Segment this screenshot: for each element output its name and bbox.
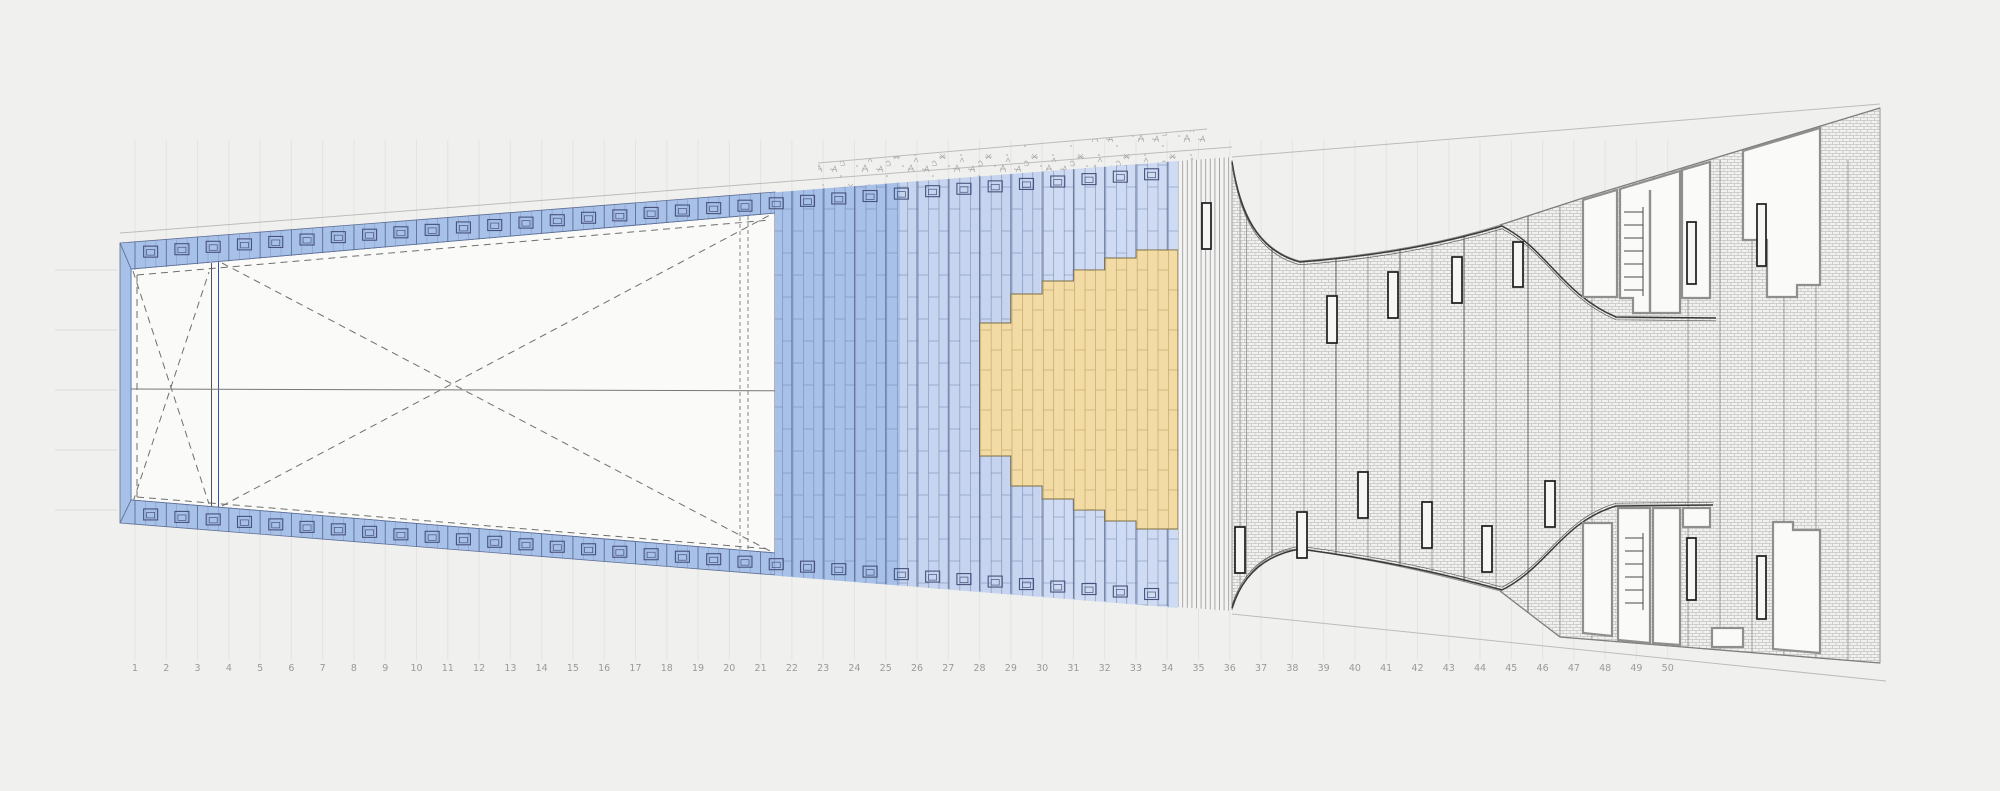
grid-number: 5 (257, 663, 263, 674)
grid-number: 35 (1192, 663, 1204, 674)
grid-number: 9 (382, 663, 388, 674)
grid-number: 12 (473, 663, 485, 674)
grid-number: 22 (786, 663, 798, 674)
grid-number: 3 (195, 663, 201, 674)
grid-number: 27 (942, 663, 954, 674)
rooflight (1452, 257, 1462, 303)
grid-number: 50 (1662, 663, 1674, 674)
grid-number: 8 (351, 663, 357, 674)
site-plan-page: 1234567891011121314151617181920212223242… (0, 0, 2000, 791)
grid-number: 13 (504, 663, 516, 674)
rooflight (1358, 472, 1368, 518)
grid-number: 33 (1130, 663, 1142, 674)
grid-number: 45 (1505, 663, 1517, 674)
grid-number: 10 (410, 663, 422, 674)
grid-number: 39 (1318, 663, 1330, 674)
grid-number: 6 (288, 663, 294, 674)
grid-number: 49 (1630, 663, 1642, 674)
landing-bottom (1683, 508, 1710, 527)
rooflight (1757, 204, 1766, 266)
grid-number: 41 (1380, 663, 1392, 674)
room-bottom-left (1583, 523, 1612, 636)
grid-number: 14 (536, 663, 548, 674)
grid-number: 30 (1036, 663, 1048, 674)
grid-number: 43 (1443, 663, 1455, 674)
grid-number: 11 (442, 663, 454, 674)
grid-number: 2 (163, 663, 169, 674)
rooflight (1482, 526, 1492, 572)
rooflight (1297, 512, 1307, 558)
rooflight (1513, 242, 1523, 287)
grid-number: 17 (629, 663, 641, 674)
rooflight (1545, 481, 1555, 527)
rooflight (1388, 272, 1398, 318)
grid-number: 19 (692, 663, 704, 674)
room-top-left (1583, 190, 1617, 297)
grid-number: 46 (1537, 663, 1549, 674)
grid-number: 4 (226, 663, 232, 674)
grid-number: 25 (880, 663, 892, 674)
grid-number: 37 (1255, 663, 1267, 674)
grid-number: 16 (598, 663, 610, 674)
grid-number: 7 (320, 663, 326, 674)
grid-number: 36 (1224, 663, 1236, 674)
grid-number: 29 (1005, 663, 1017, 674)
stair-shaft-bottom (1618, 508, 1650, 643)
rooflight (1327, 296, 1337, 343)
grid-number: 47 (1568, 663, 1580, 674)
grid-number: 28 (974, 663, 986, 674)
grid-number: 34 (1161, 663, 1173, 674)
architectural-site-plan: 1234567891011121314151617181920212223242… (0, 0, 2000, 791)
rooflight (1687, 222, 1696, 284)
grid-number: 23 (817, 663, 829, 674)
grid-number: 18 (661, 663, 673, 674)
grid-number: 38 (1286, 663, 1298, 674)
rooflight (1687, 538, 1696, 600)
grid-number: 31 (1067, 663, 1079, 674)
grid-number: 44 (1474, 663, 1486, 674)
grid-number: 32 (1099, 663, 1111, 674)
rooflight (1235, 527, 1245, 573)
corridor-bottom (1653, 508, 1680, 645)
grid-number: 20 (723, 663, 735, 674)
grid-number: 26 (911, 663, 923, 674)
grid-number: 48 (1599, 663, 1611, 674)
passage-bottom (1712, 628, 1743, 647)
room-bottom-right (1773, 522, 1820, 653)
grid-number: 1 (132, 663, 138, 674)
colonnade-band-left (120, 243, 131, 523)
grid-number: 40 (1349, 663, 1361, 674)
grid-number: 42 (1411, 663, 1423, 674)
grid-number: 24 (848, 663, 860, 674)
grid-number: 21 (755, 663, 767, 674)
rooflight (1202, 203, 1211, 249)
main-hall (131, 213, 863, 553)
rooflight (1422, 502, 1432, 548)
rooflight (1757, 556, 1766, 619)
grid-number: 15 (567, 663, 579, 674)
